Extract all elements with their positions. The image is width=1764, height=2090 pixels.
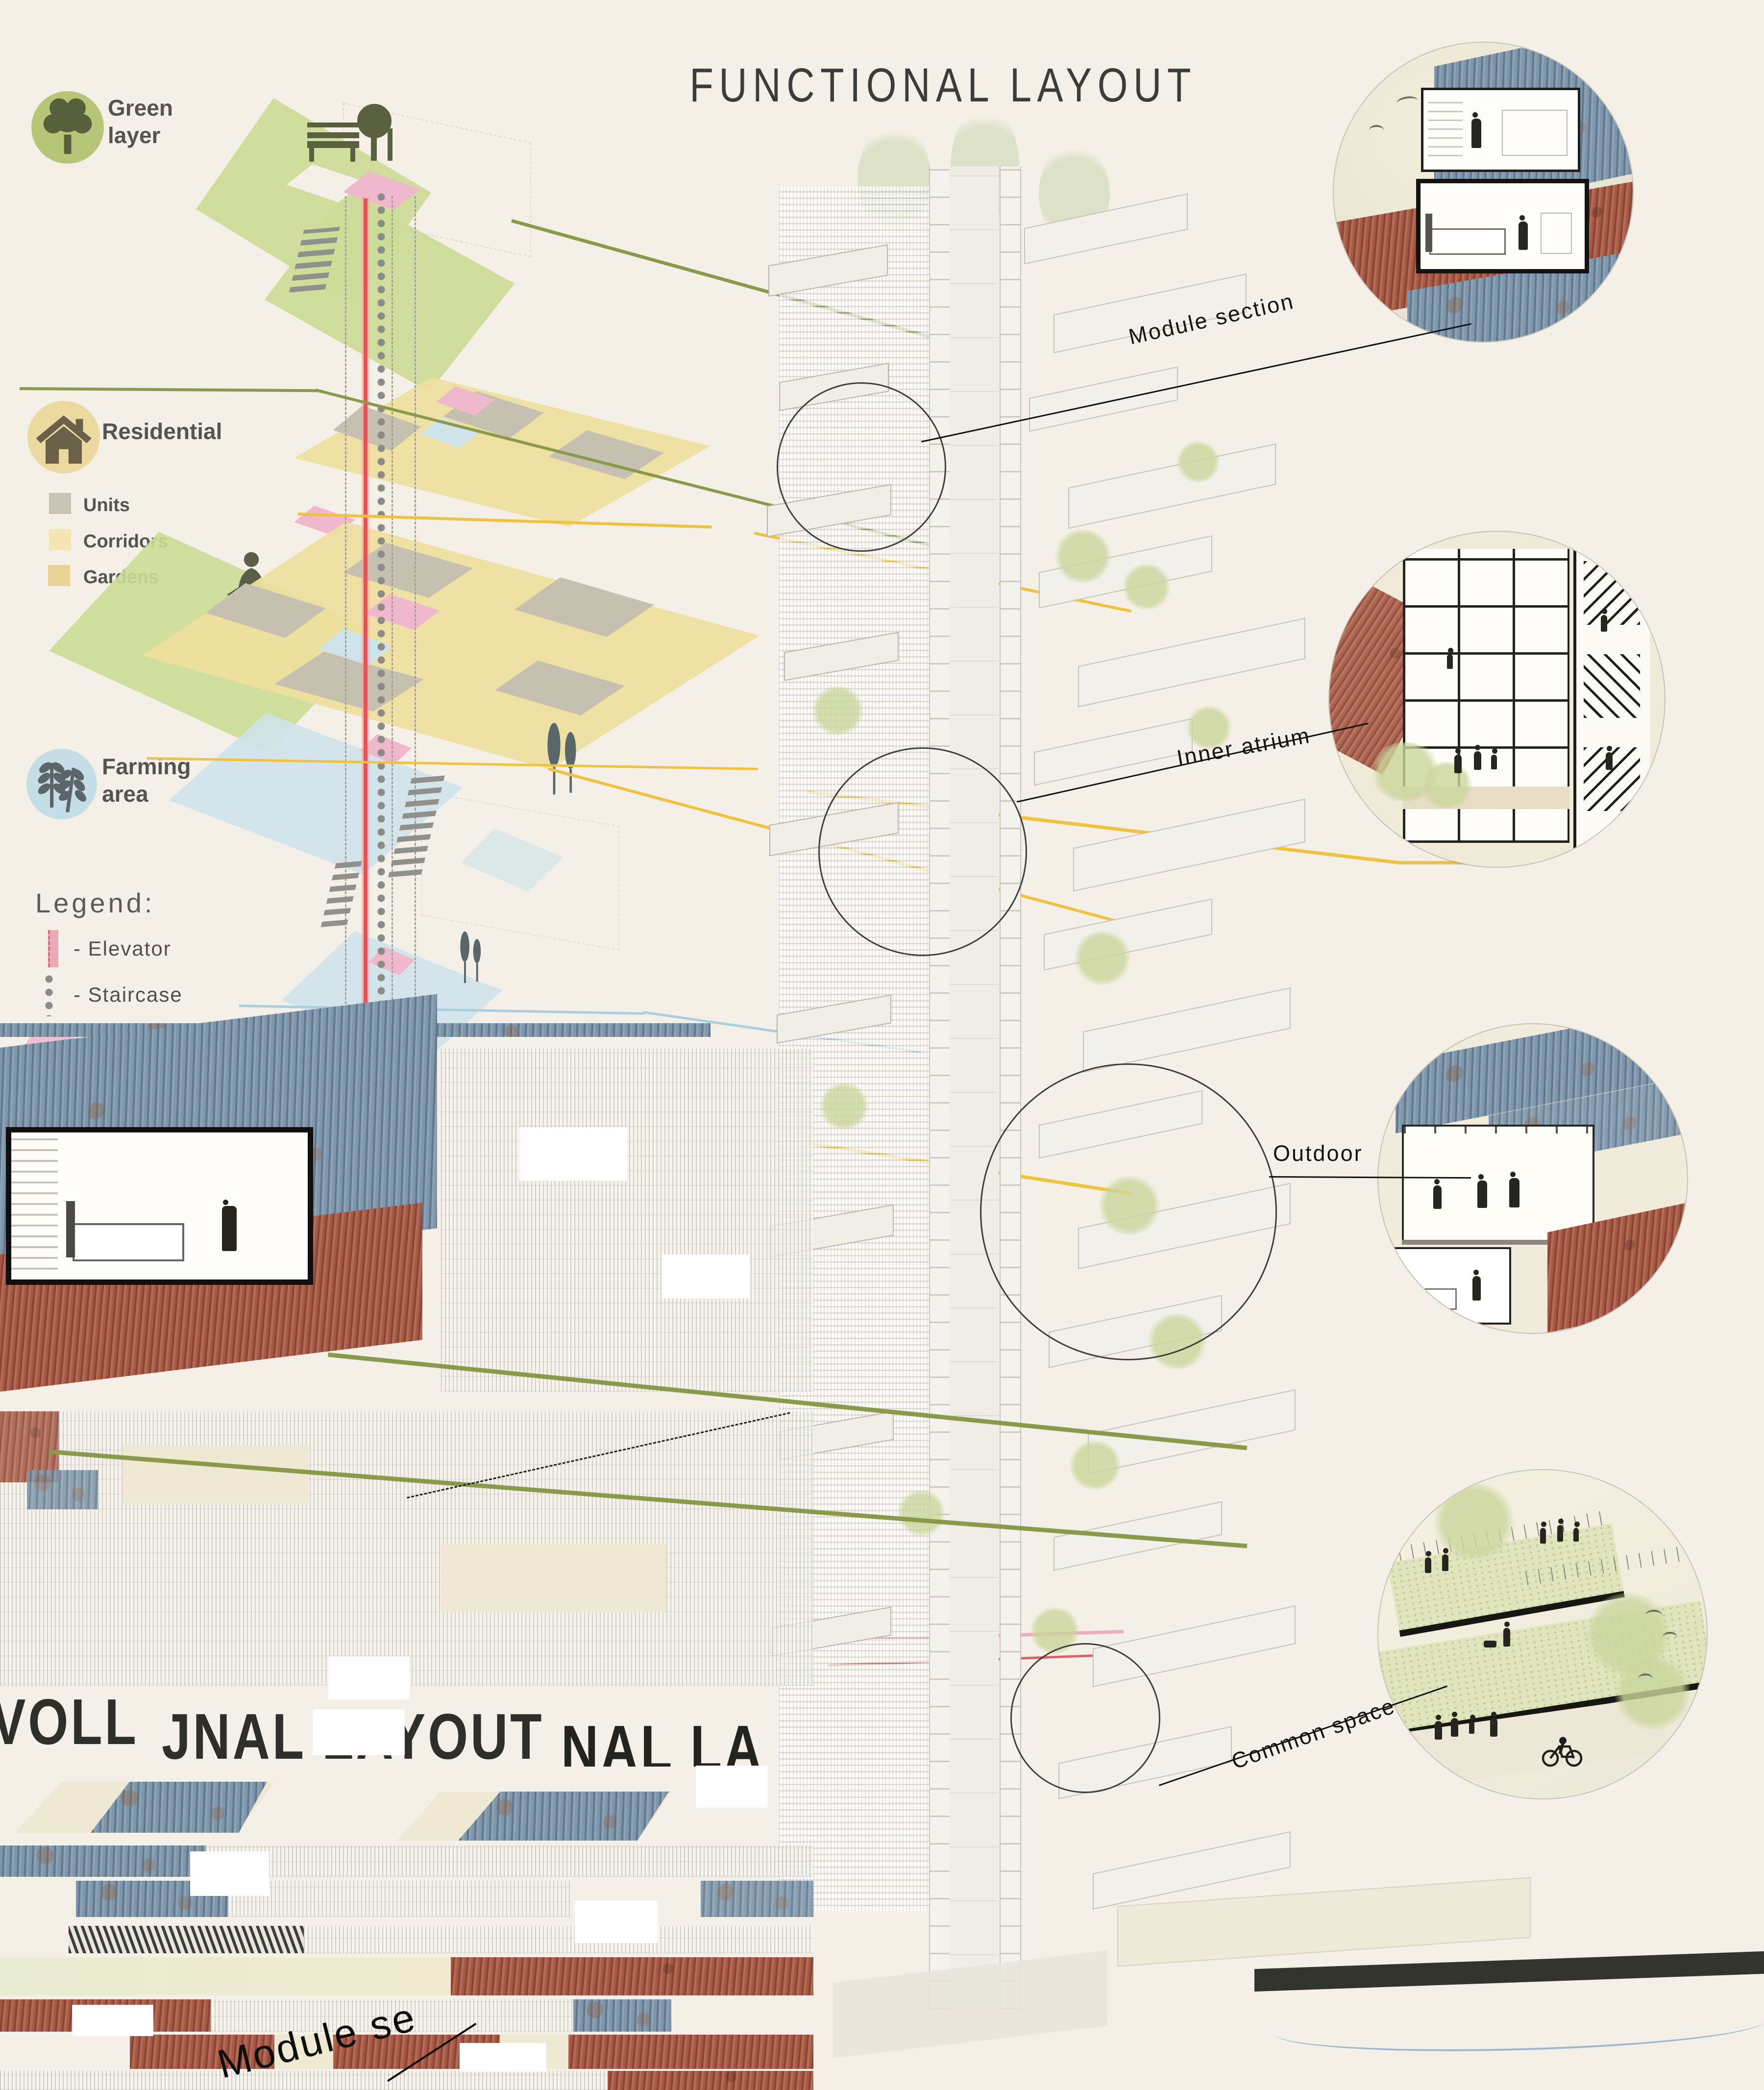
tree-canopy [1073,931,1132,985]
zoom-circle-outdoor [980,1063,1277,1360]
elevator-label: - Elevator [73,937,171,960]
tree-canopy [818,1083,870,1130]
tower-atrium-shaft [950,167,999,2009]
furniture-sketch [1502,110,1568,156]
floor-slab [1073,799,1305,892]
tree-canopy [1053,529,1112,583]
residential-circle [27,401,100,473]
gardens-swatch [48,565,70,586]
staircase-label: - Staircase [73,983,183,1007]
shelf-sketch [11,1137,58,1270]
stair-hatch [321,856,364,927]
callout-common-space: Common space [1228,1693,1398,1774]
elevator-line [364,198,367,1045]
zoom-circle-inner-atrium [818,747,1027,956]
stair-flight [1584,654,1640,718]
tree-canopy [1122,564,1171,610]
corridors-swatch [49,529,71,550]
furniture-sketch [1541,213,1572,254]
tree-canopy [1614,1656,1692,1730]
glitch-stripe [228,1881,571,1917]
glitch-sketch-area [441,1049,813,1392]
mullions [1404,1127,1592,1133]
person-silhouette [1491,755,1497,769]
person-silhouette [1442,1554,1448,1571]
glitch-stripe [608,2071,813,2090]
detail-circle-common-space [1378,1470,1707,1798]
elevator-marker [48,930,58,967]
detail-circle-outdoor [1378,1024,1687,1333]
glitch-stripe [451,1957,813,1995]
person-silhouette [1509,1178,1519,1207]
bird-icon [1663,1632,1677,1643]
floor-slab [1083,987,1291,1073]
person-silhouette [1471,119,1481,148]
glitch-fragment-blue [27,1470,98,1509]
person-silhouette [1573,1528,1579,1542]
zoom-circle-module-section [777,382,946,552]
ground-section-band [1254,1951,1764,1992]
tree-canopy [811,686,865,735]
glitch-white-rect [72,2005,153,2036]
person-silhouette [1477,1180,1487,1208]
person-silhouette [1447,654,1453,669]
bed-sketch [73,1223,184,1261]
poster-canvas: FUNCTIONAL LAYOUT Green layer Residentia… [0,0,1764,2090]
tree-canopy [1068,1441,1122,1490]
cyclist-icon [1540,1735,1584,1767]
callout-outdoor: Outdoor [1273,1141,1363,1166]
bedroom-sketch [1392,1247,1511,1325]
person-silhouette [222,1206,237,1251]
glitch-white-rect [696,1766,768,1808]
person-silhouette [1451,1718,1458,1737]
glitch-white-rect [313,1709,405,1755]
glitch-stripe [69,1926,304,1953]
legend-heading: Legend: [35,887,155,919]
wheat-specks-icon [456,921,486,995]
bird-icon [1645,1610,1662,1621]
green-leader-line [20,387,318,392]
person-silhouette [1503,1628,1510,1647]
person-silhouette [1557,1525,1563,1542]
glitch-cream-patch [122,1446,309,1504]
glitch-sketch-band [0,1411,813,1686]
person-silhouette [1454,755,1462,773]
person-silhouette [1469,1721,1474,1734]
farming-circle [26,749,97,819]
units-swatch [49,493,71,514]
glitch-stripe [0,1845,206,1877]
person-silhouette [1606,752,1613,770]
floor-slab [1078,618,1305,708]
green-layer-label: Green layer [108,94,206,149]
bench-and-tree-icon [289,96,416,184]
cutaway-room-upper [1421,88,1580,172]
floor-slab [1029,367,1178,432]
glitch-white-rect [575,1901,658,1943]
residential-label: Residential [102,418,222,445]
tree-icon [31,91,104,164]
glitch-white-rect [519,1127,627,1181]
glitch-cream-patch [441,1544,666,1612]
bed-headboard [66,1201,75,1257]
tree-canopy [1420,762,1474,809]
glitch-white-rect [328,1656,410,1699]
zoom-circle-common-space [1010,1643,1160,1793]
green-layer-circle [31,91,104,164]
staircase-dots [377,192,385,1045]
floor-slab [1068,443,1276,529]
vertical-guide [392,196,393,1044]
person-silhouette [1425,1557,1431,1573]
page-title: FUNCTIONAL LAYOUT [689,58,1124,113]
detail-circle-inner-atrium [1329,532,1665,867]
wheat-icon [26,749,97,819]
bed-headboard [1425,214,1432,252]
stair-flight [1584,561,1640,625]
person-silhouette [1519,221,1528,250]
glitch-stripe [206,1845,813,1877]
water-line [1274,1998,1764,2057]
bird-icon [1638,1673,1653,1684]
tree-canopy [1176,441,1220,483]
person-silhouette [1490,1718,1497,1737]
person-silhouette [1472,1276,1481,1301]
person-silhouette [1435,1721,1442,1740]
glitch-white-rect [190,1851,269,1896]
glitch-white-rect [661,1254,750,1299]
glitch-stripe [701,1881,813,1917]
bird-icon [1369,125,1384,136]
glitch-white-rect [460,2043,546,2072]
bed-sketch [1429,228,1506,255]
staircase-marker [45,974,53,1016]
cutaway-room-lower [1416,179,1589,273]
person-silhouette [1474,751,1481,770]
bird-icon [1396,95,1419,109]
ground-ramp [833,1950,1107,2058]
glitch-title-fragment: VOLL [0,1685,139,1759]
shelf-sketch [1428,98,1463,156]
poplar-trees-icon [543,712,580,810]
detail-circle-module-section [1334,43,1633,342]
glitch-stripe [304,1926,813,1953]
glitch-cutaway-room [6,1127,313,1285]
person-silhouette [1540,1528,1546,1544]
floor-slab [1034,718,1193,786]
interior-room [1402,1125,1594,1244]
glitch-stripe [573,1999,671,2032]
tree-canopy [897,1490,946,1536]
stair-shaft [1573,541,1650,855]
person-silhouette [1601,615,1607,632]
person-silhouette [1433,1185,1442,1209]
vertical-guide [415,196,416,1044]
dog-silhouette [1484,1641,1496,1647]
house-icon [27,401,100,473]
glitch-title-fragment: NAL LA [561,1711,764,1767]
bed-sketch [1400,1288,1457,1310]
units-label: Units [83,495,130,516]
